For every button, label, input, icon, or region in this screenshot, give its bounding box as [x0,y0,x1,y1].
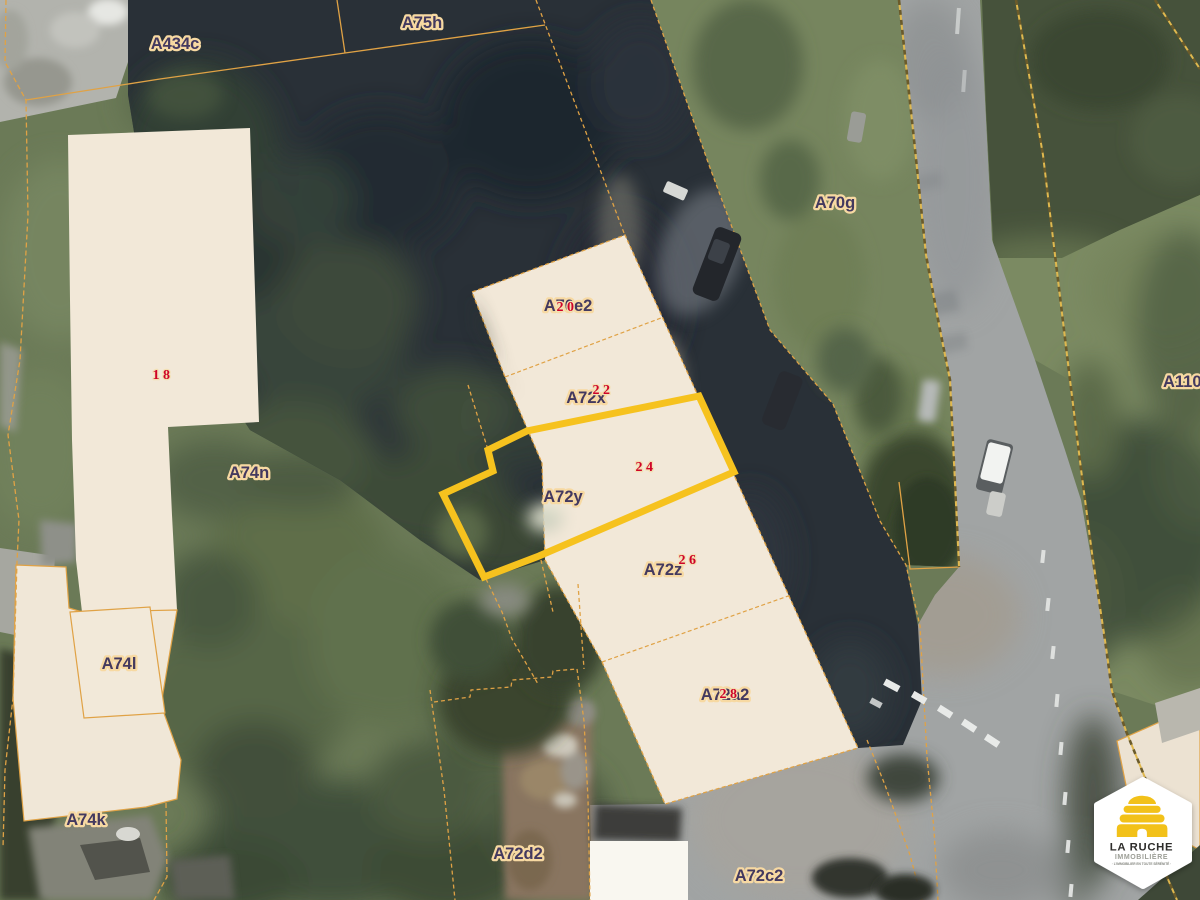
svg-text:A72z: A72z [644,561,683,579]
svg-text:28: 28 [720,687,741,702]
svg-text:26: 26 [679,553,700,568]
svg-text:LA RUCHE: LA RUCHE [1110,842,1174,854]
svg-text:A72c2: A72c2 [735,867,784,885]
svg-text:24: 24 [636,460,657,475]
svg-text:IMMOBILIÈRE: IMMOBILIÈRE [1115,852,1168,861]
svg-text:A434c: A434c [151,35,200,53]
svg-text:A74k: A74k [66,811,106,829]
svg-text:A72d2: A72d2 [493,845,543,863]
svg-text:A70g: A70g [815,194,855,212]
svg-text:18: 18 [153,368,174,383]
svg-text:A110: A110 [1163,373,1200,391]
svg-text:· L'IMMOBILIER EN TOUTE SÉRÉNI: · L'IMMOBILIER EN TOUTE SÉRÉNITÉ · [1112,861,1172,866]
svg-text:A75h: A75h [402,14,442,32]
svg-text:20: 20 [557,300,578,315]
svg-text:A74n: A74n [229,464,269,482]
svg-text:22: 22 [593,383,614,398]
svg-text:A74l: A74l [102,655,137,673]
svg-text:A72y: A72y [543,488,583,506]
